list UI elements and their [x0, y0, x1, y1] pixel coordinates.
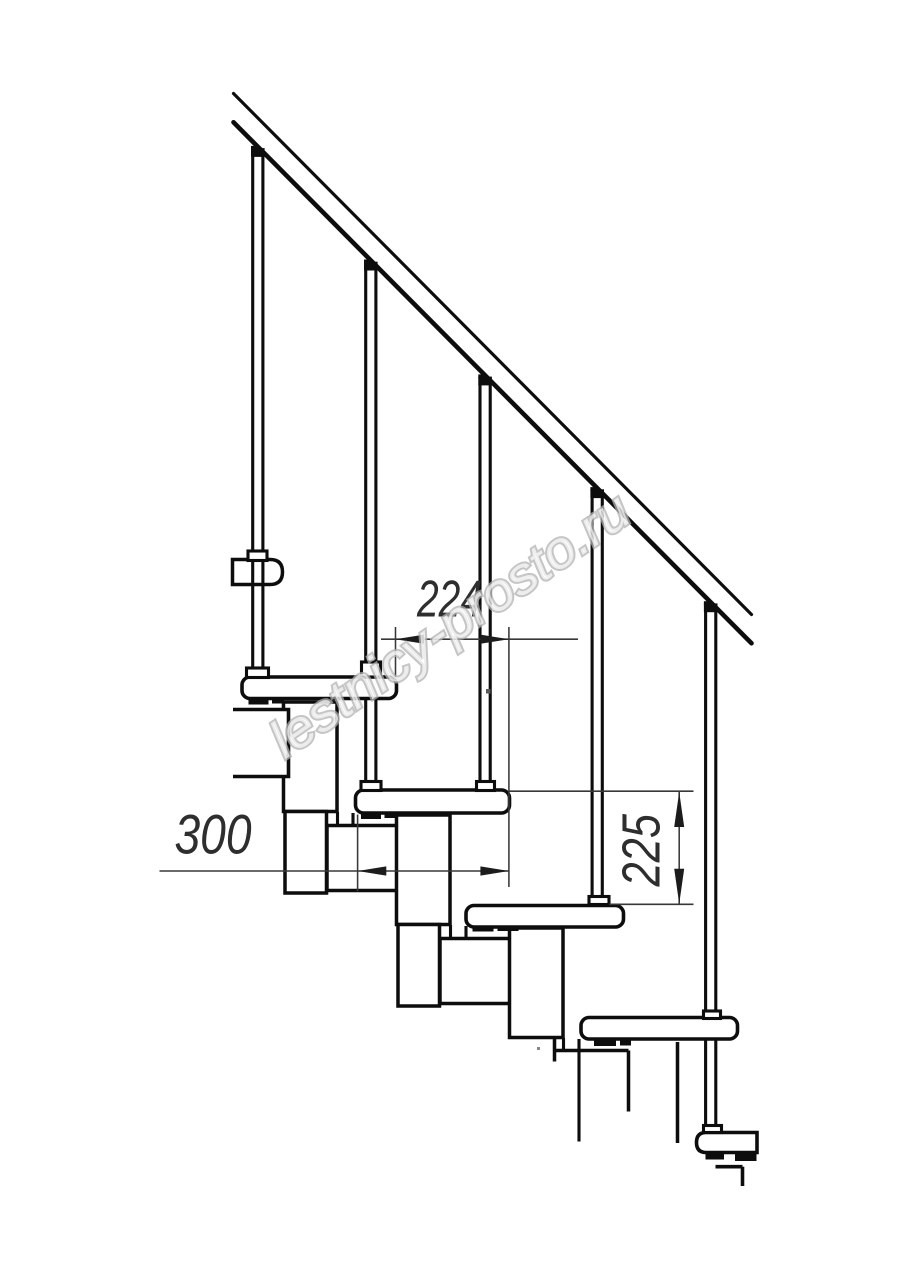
- svg-text:225: 225: [612, 813, 672, 887]
- svg-text:300: 300: [175, 803, 252, 866]
